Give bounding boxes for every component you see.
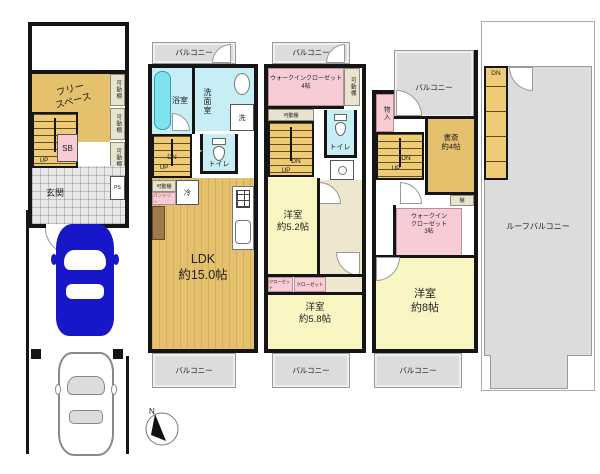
car-rear-window xyxy=(69,410,103,424)
bedroom-8-label: 洋室 約8帖 xyxy=(397,288,453,316)
shelf-label: 可動棚 xyxy=(349,77,355,97)
movable-shelf-1f-a: 可動棚 xyxy=(110,74,125,106)
balcony-label: バルコニー xyxy=(175,48,212,57)
stairs-3f-up-label: UP xyxy=(278,167,294,175)
hand-basin xyxy=(330,160,354,180)
washbasin-icon xyxy=(234,73,250,95)
bath-label: 浴室 xyxy=(166,96,194,106)
bedroom-5-8-label: 洋室 約5.8帖 xyxy=(292,302,338,326)
closet-label: クローゼット xyxy=(269,279,292,291)
study-label: 書斎 約4帖 xyxy=(430,133,472,152)
stairs-roof-dn-label: DN xyxy=(486,70,506,78)
stair-divider xyxy=(54,118,56,152)
balcony-door-arc xyxy=(326,44,345,63)
balcony-3f-top: バルコニー xyxy=(272,42,350,64)
fridge-label: 冷 xyxy=(184,188,191,198)
basin-icon xyxy=(338,166,347,175)
compass: N xyxy=(140,406,184,450)
wall xyxy=(327,155,354,158)
stairs-1f-up-label: UP xyxy=(34,157,54,165)
parking-post-left xyxy=(31,349,41,359)
shelf-label: 棚 xyxy=(459,197,464,204)
pantry: パントリー xyxy=(152,192,176,205)
balcony-2f-top: バルコニー xyxy=(152,42,236,64)
carport-outline xyxy=(28,22,129,74)
balcony-label: バルコニー xyxy=(399,366,436,375)
floor-plan: フリー スペース 可動棚 可動棚 可動棚 玄関 PS SB UP N xyxy=(0,0,600,474)
shelf-label: 可動棚 xyxy=(283,112,298,119)
shelf-label: 可動棚 xyxy=(115,80,121,100)
toilet-tank-icon xyxy=(334,114,347,121)
stairs-4f-up-label: UP xyxy=(388,165,404,173)
balcony-door-arc xyxy=(212,44,231,63)
car-mirror-right xyxy=(113,254,119,265)
shelf-label: 可動棚 xyxy=(156,183,171,190)
parking-post-right xyxy=(113,349,123,359)
balcony-label: バルコニー xyxy=(292,48,329,57)
car-mirror-left xyxy=(51,254,57,265)
toilet-2f-label: トイレ xyxy=(203,161,235,170)
balcony-2f-bottom: バルコニー xyxy=(152,353,236,388)
stairs-4f-dn-label: DN xyxy=(398,155,414,163)
shelf-label: 可動棚 xyxy=(115,114,121,134)
ldk-label: LDK 約15.0帖 xyxy=(165,252,241,283)
wic-4f-label: ウォークイン クローゼット 3帖 xyxy=(400,214,458,237)
stairs-3f-dn-label: DN xyxy=(288,158,304,166)
toilet-tank-icon xyxy=(212,138,226,145)
roof-balcony-lower xyxy=(490,355,568,389)
shelf-label: 可動棚 xyxy=(115,148,121,168)
stove-icon xyxy=(236,190,250,208)
closet-label: クローゼット xyxy=(297,282,324,288)
car-mirror-right xyxy=(111,384,117,395)
bedroom-5-2-label: 洋室 約5.2帖 xyxy=(270,210,316,234)
compass-north-label: N xyxy=(149,407,155,417)
wic-3f-label: ウォークインクローゼット 4帖 xyxy=(269,76,343,91)
study-room xyxy=(428,119,474,192)
car-windshield xyxy=(67,376,105,395)
wall xyxy=(203,171,235,174)
closet-b: クローゼット xyxy=(294,277,326,292)
storage-4f: 物入 xyxy=(376,94,394,132)
movable-shelf-3f-side: 可動棚 xyxy=(344,68,360,106)
toilet-3f-label: トイレ xyxy=(325,144,355,153)
balcony-label: バルコニー xyxy=(175,366,212,375)
washroom-label: 洗面室 xyxy=(203,76,211,126)
pantry-label: パントリー xyxy=(153,193,175,205)
movable-shelf-1f-b: 可動棚 xyxy=(110,108,125,140)
stairs-2f-up-label: UP xyxy=(156,164,172,172)
balcony-3f-bottom: バルコニー xyxy=(272,353,350,388)
refrigerator: 冷 xyxy=(176,180,199,205)
pipe-space: PS xyxy=(110,176,125,200)
closet-a: クローゼット xyxy=(268,277,293,292)
balcony-label: バルコニー xyxy=(292,366,329,375)
laundry-pan: 洗 xyxy=(230,104,254,131)
stairs-roof xyxy=(484,66,508,180)
parking-boundary-right xyxy=(126,356,129,454)
cabinet xyxy=(152,206,165,240)
car-rear-window xyxy=(66,284,104,299)
compass-rose xyxy=(140,406,184,450)
laundry-label: 洗 xyxy=(239,113,246,123)
car-mirror-left xyxy=(55,384,61,395)
wall xyxy=(235,134,238,174)
shoe-box: SB xyxy=(57,134,78,162)
storage-label: 物入 xyxy=(382,106,389,121)
car-windshield xyxy=(64,250,106,270)
movable-shelf-3f-under: 可動棚 xyxy=(268,109,314,121)
ps-label: PS xyxy=(114,185,121,191)
shoe-box-label: SB xyxy=(62,144,73,153)
kitchen-sink-icon xyxy=(235,220,251,244)
movable-shelf-2f: 可動棚 xyxy=(152,180,176,192)
car-blue xyxy=(56,224,114,336)
parking-boundary-left xyxy=(26,210,29,454)
wall xyxy=(474,50,478,94)
car-gray xyxy=(58,352,114,456)
balcony-4f-bottom: バルコニー xyxy=(374,353,462,388)
stairs-2f-dn-label: DN xyxy=(164,154,180,162)
wall xyxy=(317,178,320,274)
entrance-label: 玄関 xyxy=(40,188,70,199)
roof-balcony-label: ルーフバルコニー xyxy=(496,222,580,232)
stair-divider xyxy=(290,127,292,161)
balcony-label: バルコニー xyxy=(415,83,452,92)
shelf-4f: 棚 xyxy=(450,195,474,206)
